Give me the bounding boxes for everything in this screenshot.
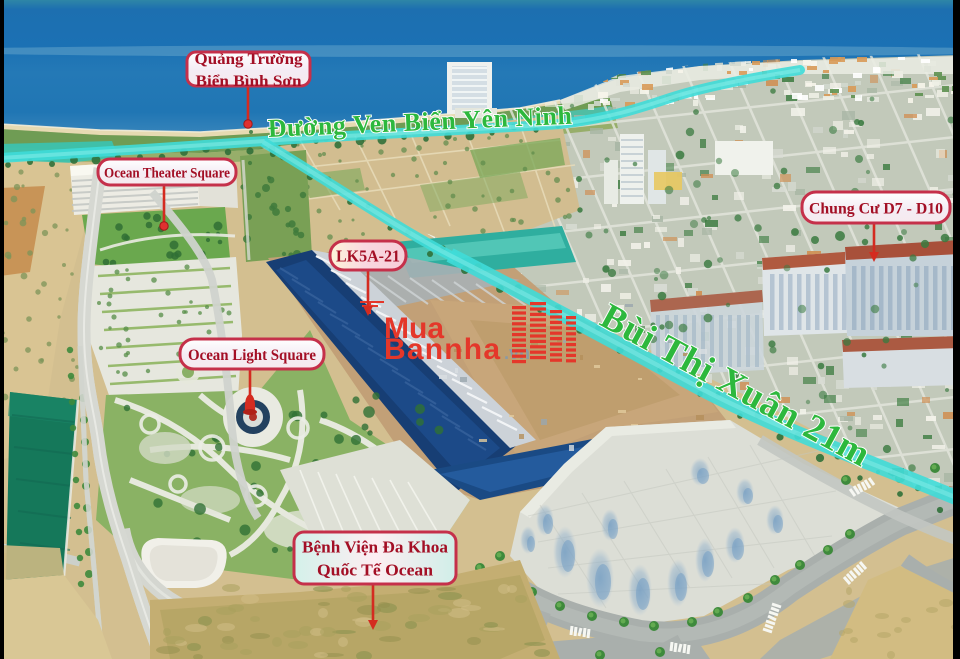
svg-text:Bệnh Viện Đa Khoa: Bệnh Viện Đa Khoa — [302, 538, 449, 557]
svg-text:Chung Cư D7 - D10: Chung Cư D7 - D10 — [809, 200, 943, 217]
svg-text:LK5A-21: LK5A-21 — [336, 247, 400, 266]
svg-text:Quốc Tế Ocean: Quốc Tế Ocean — [317, 561, 434, 580]
svg-text:Ocean Light Square: Ocean Light Square — [188, 347, 316, 364]
svg-text:Ocean Theater Square: Ocean Theater Square — [104, 165, 230, 181]
svg-text:Bannha: Bannha — [384, 333, 501, 366]
svg-text:Quảng Trường: Quảng Trường — [195, 51, 303, 68]
svg-text:Biển Bình Sơn: Biển Bình Sơn — [196, 73, 302, 90]
